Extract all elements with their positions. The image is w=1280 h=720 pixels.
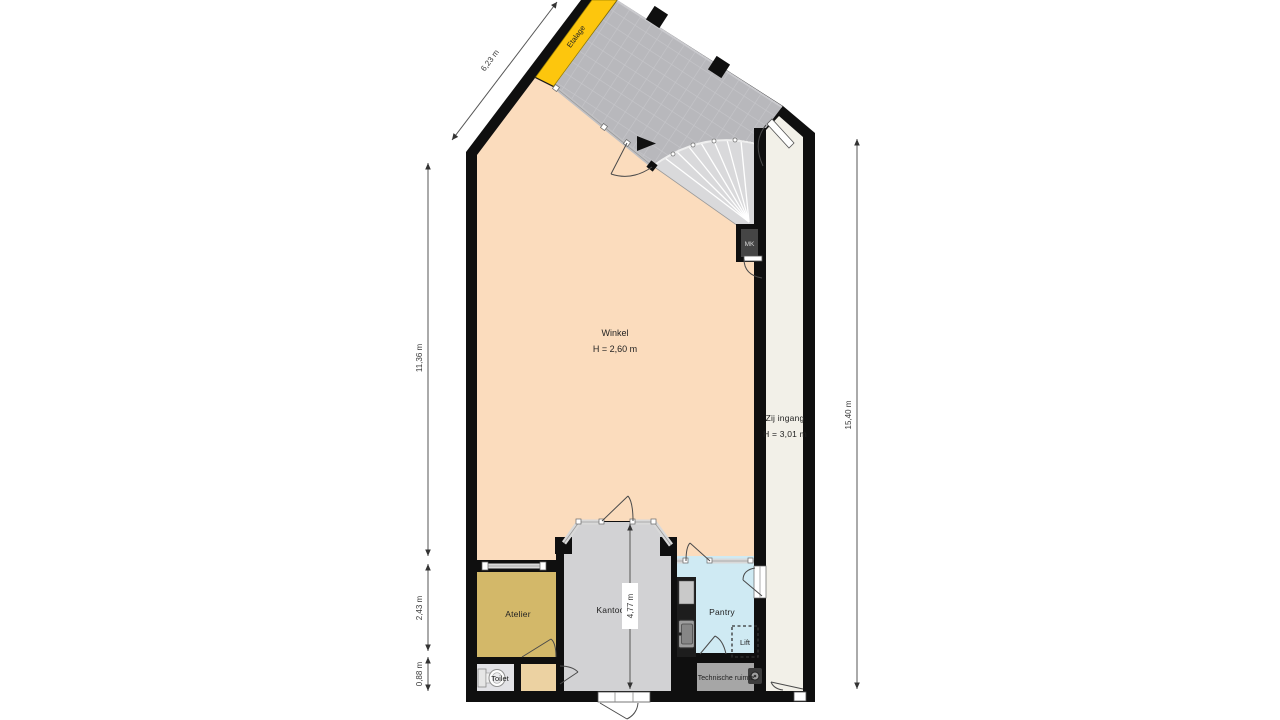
label-mk: MK [745,241,755,248]
room-corridor [766,116,803,691]
dimension-left-middle: 2,43 m [415,564,431,651]
label-winkel-height: H = 2,60 m [593,344,637,354]
sink-icon [678,620,694,648]
svg-text:2,43 m: 2,43 m [415,595,424,620]
pantry-counter [677,577,696,657]
svg-text:4,77 m: 4,77 m [626,593,635,618]
label-lift: Lift [740,638,751,647]
floorplan-canvas: Etalage Winkel H = 2,60 m Zij ingang H =… [0,0,1280,720]
label-technische-ruimte: Technische ruimte [698,675,755,682]
label-pantry: Pantry [709,607,735,617]
main-rear-door [598,692,650,719]
svg-text:0,88 m: 0,88 m [415,661,424,686]
label-atelier: Atelier [505,609,531,619]
room-vestibule [521,664,556,691]
label-toilet: Toilet [491,674,509,683]
label-zij-ingang: Zij ingang [766,413,805,423]
svg-text:11,36 m: 11,36 m [415,344,424,373]
floorplan-page: Etalage Winkel H = 2,60 m Zij ingang H =… [0,0,1280,720]
label-zij-ingang-height: H = 3,01 m [763,429,807,439]
dimension-right-side: 15,40 m [844,139,860,689]
label-winkel: Winkel [601,328,628,338]
dimension-left-upper: 11,36 m [415,163,431,556]
svg-text:15,40 m: 15,40 m [844,400,853,429]
dimension-left-lower: 0,88 m [415,657,431,691]
svg-text:6,23 m: 6,23 m [479,48,501,73]
